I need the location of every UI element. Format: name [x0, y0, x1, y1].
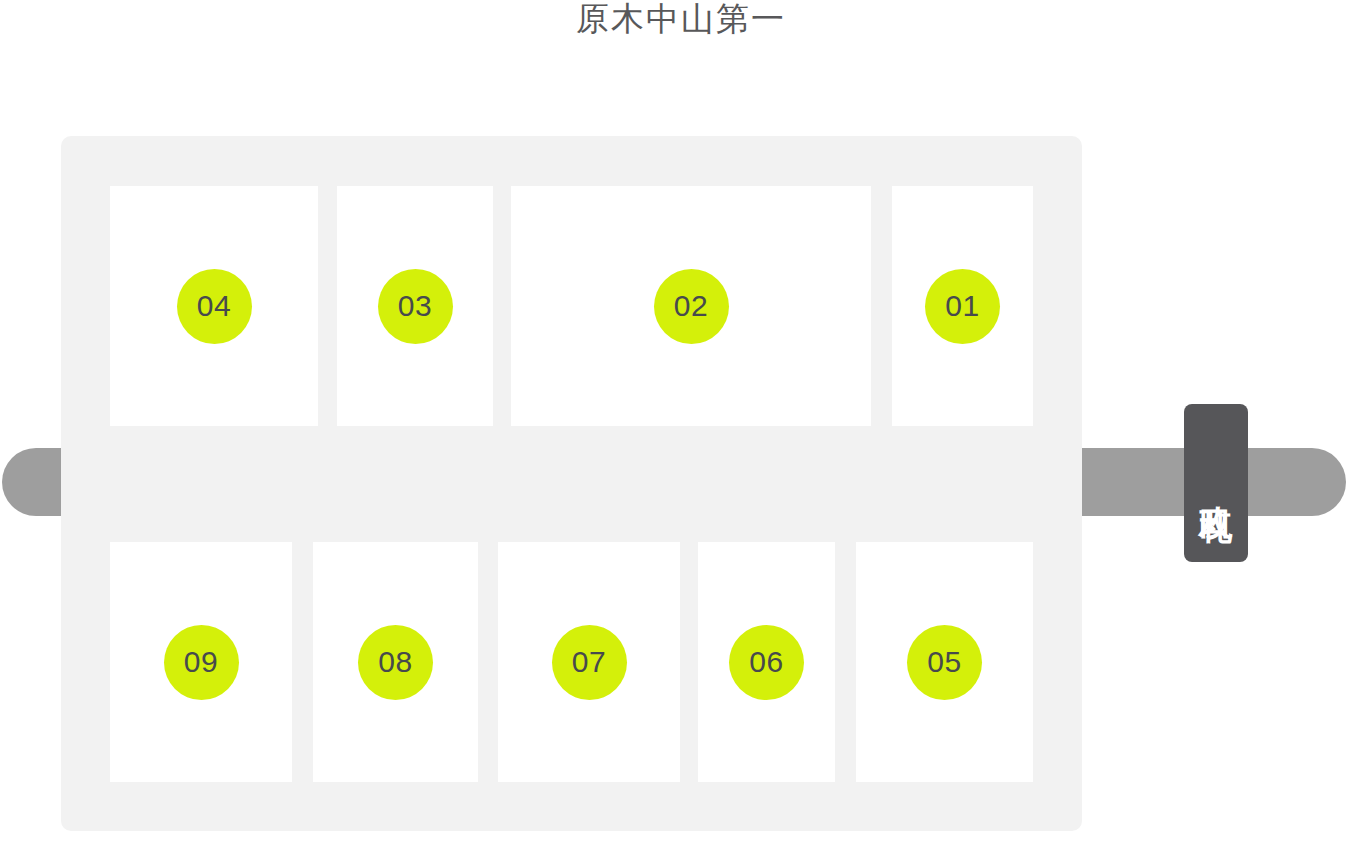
zone-number: 06 [749, 645, 783, 679]
platform-area: 04 03 02 01 09 08 [61, 136, 1082, 831]
zone-box-01[interactable]: 01 [892, 186, 1033, 426]
zone-number: 08 [378, 645, 412, 679]
zone-number: 04 [197, 289, 231, 323]
zone-box-07[interactable]: 07 [498, 542, 680, 782]
page-title: 原木中山第一 [0, 0, 1362, 38]
zone-badge-03: 03 [378, 269, 453, 344]
station-map: 原木中山第一 04 03 02 01 09 [0, 0, 1362, 856]
zone-badge-07: 07 [552, 625, 627, 700]
zone-badge-05: 05 [907, 625, 982, 700]
ticket-gate-label: 改札口 [1184, 404, 1248, 562]
zone-badge-04: 04 [177, 269, 252, 344]
zone-box-02[interactable]: 02 [511, 186, 871, 426]
zone-badge-06: 06 [729, 625, 804, 700]
zone-badge-08: 08 [358, 625, 433, 700]
ticket-gate-text: 改札口 [1193, 479, 1239, 488]
zone-badge-02: 02 [654, 269, 729, 344]
zone-box-03[interactable]: 03 [337, 186, 493, 426]
zone-number: 02 [674, 289, 708, 323]
zone-number: 07 [572, 645, 606, 679]
zone-number: 01 [945, 289, 979, 323]
zone-badge-09: 09 [164, 625, 239, 700]
zone-box-04[interactable]: 04 [110, 186, 318, 426]
zone-box-05[interactable]: 05 [856, 542, 1033, 782]
zone-box-09[interactable]: 09 [110, 542, 292, 782]
zone-number: 05 [927, 645, 961, 679]
zone-badge-01: 01 [925, 269, 1000, 344]
zone-number: 09 [184, 645, 218, 679]
zone-box-08[interactable]: 08 [313, 542, 478, 782]
zone-box-06[interactable]: 06 [698, 542, 835, 782]
zone-number: 03 [398, 289, 432, 323]
